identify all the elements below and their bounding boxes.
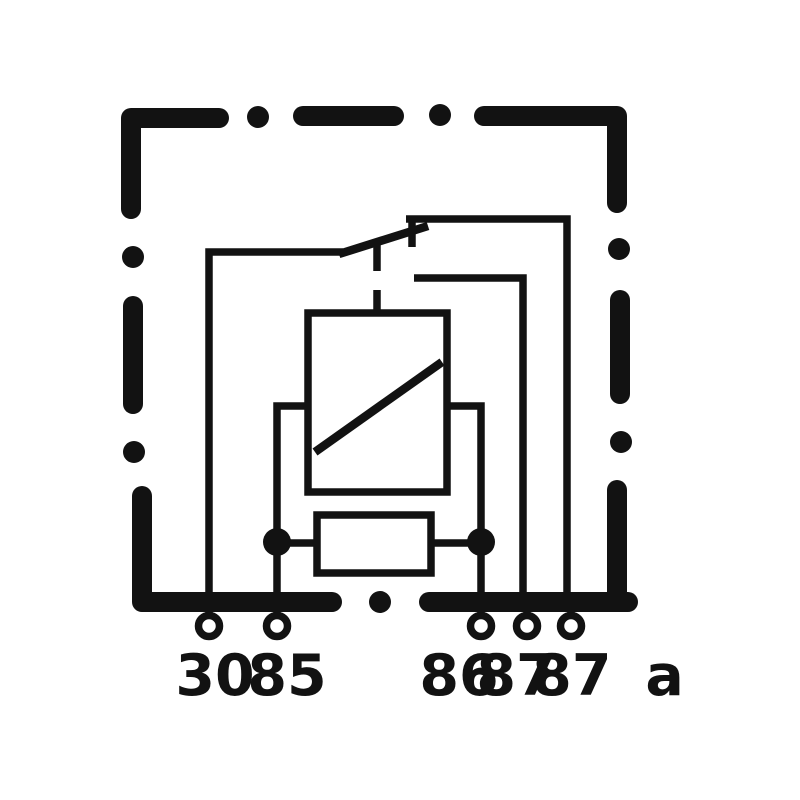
resistor-box [317, 515, 431, 573]
border-dot [123, 441, 145, 463]
border-dot [247, 106, 269, 128]
terminal-pin-85 [267, 616, 288, 637]
circuit-wires [209, 217, 567, 600]
terminal-pin-87a [561, 616, 582, 637]
terminal-pin-30 [199, 616, 220, 637]
junction-dot-86 [467, 528, 495, 556]
border-dot [429, 104, 451, 126]
border-dot [122, 246, 144, 268]
junction-dot-85 [263, 528, 291, 556]
terminal-pin-86 [471, 616, 492, 637]
relay-wiring-diagram: 3085868787 a [0, 0, 800, 800]
border-dot [610, 431, 632, 453]
border-dot [369, 591, 391, 613]
schematic-canvas [0, 0, 800, 800]
terminal-pin-87 [517, 616, 538, 637]
border-dot [608, 238, 630, 260]
border-bottom-left-corner [142, 496, 332, 602]
border-top-right-corner [484, 116, 617, 203]
border-top-left-corner [131, 118, 219, 209]
